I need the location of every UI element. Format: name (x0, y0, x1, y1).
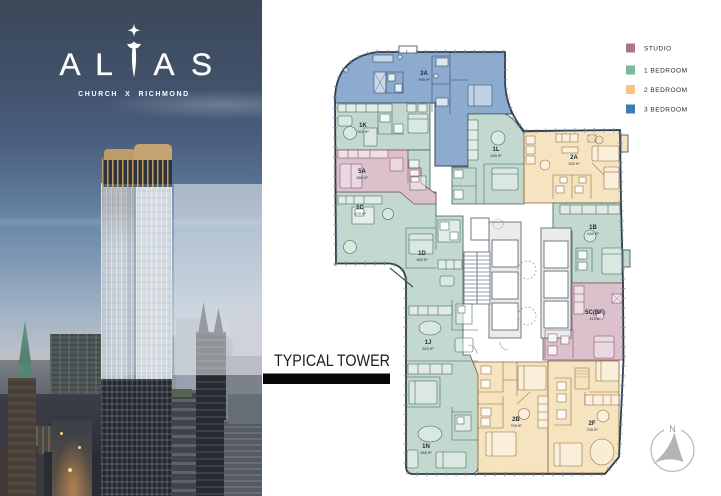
svg-text:545 ft²: 545 ft² (490, 153, 502, 158)
svg-text:N: N (669, 424, 676, 434)
svg-text:470 ft²: 470 ft² (354, 211, 366, 216)
svg-text:1 BEDROOM: 1 BEDROOM (644, 68, 688, 75)
svg-text:3 BEDROOM: 3 BEDROOM (644, 107, 688, 114)
svg-text:480 ft²: 480 ft² (416, 257, 428, 262)
svg-text:STUDIO: STUDIO (644, 46, 672, 53)
svg-text:925 ft²: 925 ft² (568, 161, 580, 166)
svg-text:640 ft²: 640 ft² (587, 231, 599, 236)
svg-text:990 ft²: 990 ft² (418, 77, 430, 82)
svg-text:415 ft²: 415 ft² (589, 316, 601, 321)
svg-text:620 ft²: 620 ft² (422, 346, 434, 351)
svg-text:2 BEDROOM: 2 BEDROOM (644, 87, 688, 94)
svg-text:TYPICAL TOWER: TYPICAL TOWER (274, 352, 390, 370)
svg-text:565 ft²: 565 ft² (420, 450, 432, 455)
svg-text:920 ft²: 920 ft² (357, 129, 369, 134)
svg-text:380 ft²: 380 ft² (356, 175, 368, 180)
svg-text:765 ft²: 765 ft² (586, 427, 598, 432)
svg-text:705 ft²: 705 ft² (510, 423, 522, 428)
